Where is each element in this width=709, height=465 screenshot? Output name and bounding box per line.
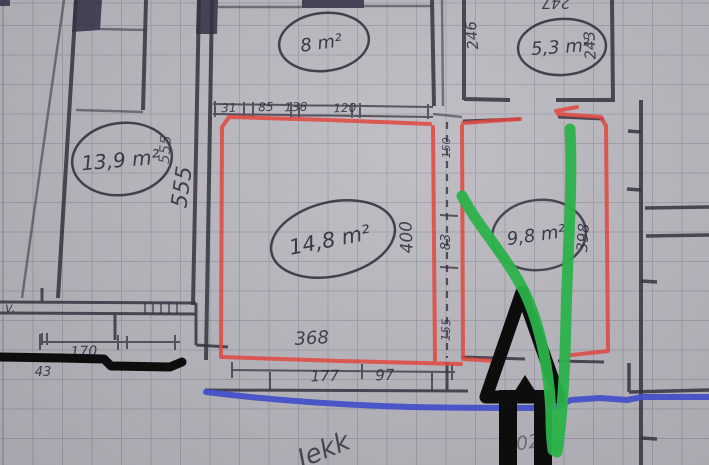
dim-398: 398 <box>573 223 593 253</box>
room-area-label-right: 9,8 m² <box>506 221 567 250</box>
dim-555-thin: 555 <box>155 135 175 165</box>
dimension-lines <box>40 101 458 390</box>
dim-246: 246 <box>462 20 482 50</box>
dim-row-138: 138 <box>284 100 308 115</box>
dim-247-clipped: 247 <box>541 0 570 12</box>
room-area-label-center: 14,8 m² <box>287 220 373 259</box>
dim-row-31: 31 <box>221 101 237 116</box>
dim-43: 43 <box>35 365 52 380</box>
blue-marker-line <box>206 392 709 408</box>
room-area-label-top-middle: 8 m² <box>299 30 343 57</box>
dim-97: 97 <box>375 366 395 385</box>
dim-368: 368 <box>294 327 329 350</box>
note-v: v. <box>5 301 16 316</box>
wall-segment-thin <box>22 0 462 298</box>
dim-155: 155 <box>439 318 454 341</box>
black-arrow-leg-left <box>499 390 517 465</box>
dim-243: 243 <box>580 30 599 60</box>
dim-177: 177 <box>310 366 340 385</box>
black-marker-layer <box>0 292 559 465</box>
dim-row-120: 120 <box>333 101 357 116</box>
wall-piers <box>0 0 364 34</box>
dim-150: 150 <box>440 138 453 159</box>
floor-plan-photo: 13,9 m² 8 m² 5,3 m² 14,8 m² 9,8 m² 555 5… <box>0 0 709 465</box>
dim-row-85: 85 <box>258 100 274 115</box>
dim-400: 400 <box>396 221 417 254</box>
dim-83: 83 <box>439 234 454 251</box>
black-underline <box>0 357 182 367</box>
floor-plan-drawing: 13,9 m² 8 m² 5,3 m² 14,8 m² 9,8 m² 555 5… <box>0 0 709 465</box>
scribble-center: Jekk <box>289 426 356 465</box>
room-area-label-left: 13,9 m² <box>80 145 160 176</box>
